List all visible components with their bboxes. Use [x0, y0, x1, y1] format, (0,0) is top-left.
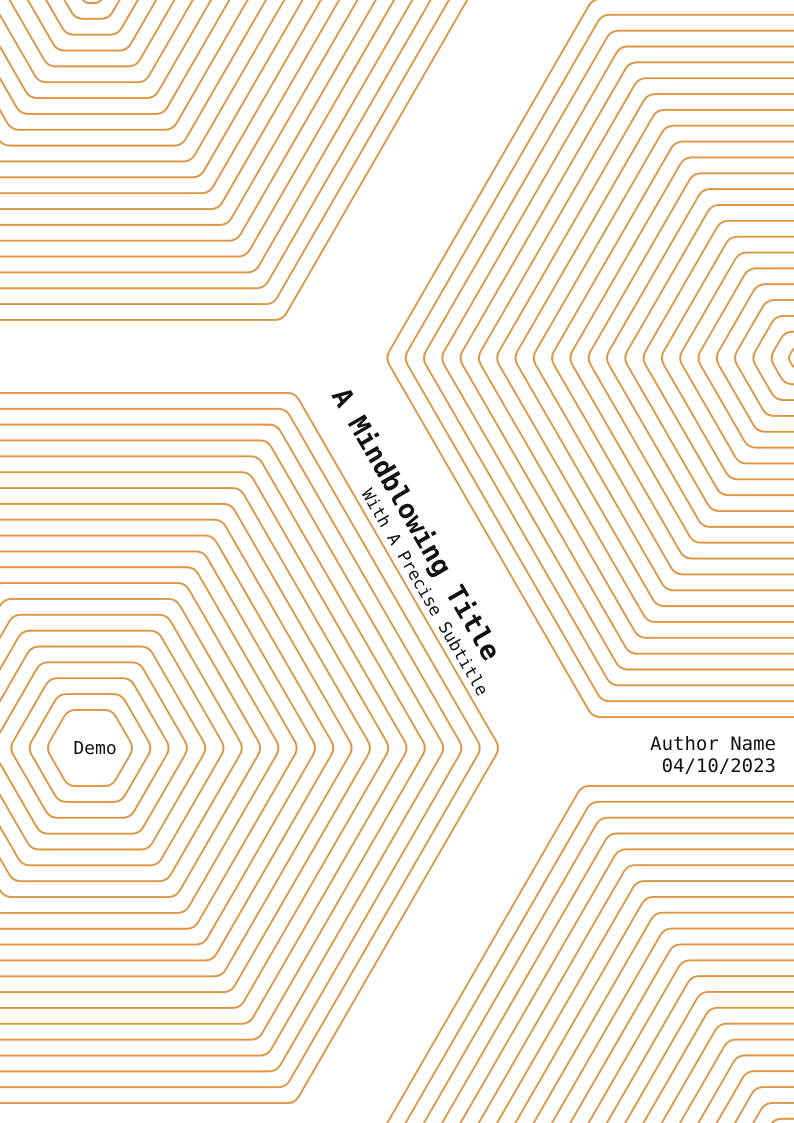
author-block: Author Name 04/10/2023: [650, 734, 776, 778]
title-page: A Mindblowing Title With A Precise Subti…: [0, 0, 794, 1123]
hexagon-group-top-left: [0, 0, 471, 320]
date: 04/10/2023: [650, 756, 776, 778]
demo-badge: Demo: [45, 739, 145, 759]
author-name: Author Name: [650, 734, 776, 756]
